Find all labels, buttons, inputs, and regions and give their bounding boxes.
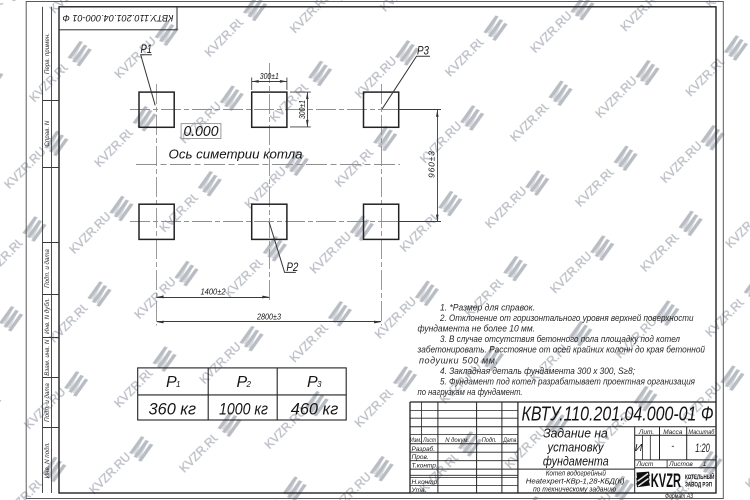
svg-text:Пров.: Пров.: [412, 454, 429, 461]
svg-text:Перв. примен.: Перв. примен.: [44, 33, 51, 74]
svg-text:забетонировать. Расстояние от: забетонировать. Расстояние от осей крайн…: [417, 345, 705, 355]
svg-text:360 кг: 360 кг: [149, 400, 197, 419]
svg-text:КОТЕЛЬНЫЙ: КОТЕЛЬНЫЙ: [685, 473, 715, 481]
svg-text:ЗАВОД РЭП: ЗАВОД РЭП: [685, 482, 712, 489]
svg-text:Лист: Лист: [636, 461, 654, 468]
svg-text:0.000: 0.000: [184, 124, 219, 140]
svg-text:Изм.: Изм.: [410, 437, 422, 444]
svg-text:2800±3: 2800±3: [256, 312, 281, 322]
svg-text:Лит.: Лит.: [638, 429, 654, 436]
svg-text:Масса: Масса: [663, 429, 683, 436]
svg-text:по техническому заданию: по техническому заданию: [533, 484, 617, 493]
svg-text:960±3: 960±3: [427, 151, 437, 178]
svg-text:КВТУ.110.201.04.000-01 Ф: КВТУ.110.201.04.000-01 Ф: [63, 13, 174, 23]
svg-text:KVZR: KVZR: [651, 470, 681, 492]
svg-text:установку: установку: [547, 440, 605, 454]
svg-text:Масштаб: Масштаб: [688, 428, 714, 436]
svg-text:1: 1: [703, 461, 707, 468]
svg-text:Подп. и дата: Подп. и дата: [44, 249, 51, 288]
svg-text:4. Закладная деталь фундамента: 4. Закладная деталь фундамента 300 х 300…: [440, 366, 635, 376]
svg-text:Лист: Лист: [422, 437, 436, 444]
svg-text:5. Фундамент под котел разраба: 5. Фундамент под котел разрабатывает про…: [440, 377, 695, 387]
svg-text:2: 2: [246, 380, 252, 389]
svg-text:Формат А3: Формат А3: [665, 493, 693, 500]
svg-text:Подп. и дата: Подп. и дата: [44, 383, 51, 422]
svg-text:P1: P1: [140, 44, 152, 56]
svg-text:Инв. N дубл.: Инв. N дубл.: [44, 298, 51, 334]
svg-text:Задание на: Задание на: [543, 427, 608, 441]
svg-text:КВТУ.110.201.04.000-01 Ф: КВТУ.110.201.04.000-01 Ф: [522, 404, 714, 426]
svg-text:Справ. N: Справ. N: [44, 120, 51, 146]
svg-text:Взам. инв. N: Взам. инв. N: [44, 339, 51, 376]
svg-text:Н.контр.: Н.контр.: [412, 479, 440, 486]
svg-text:фундамента не более 10 мм.: фундамента не более 10 мм.: [418, 324, 536, 334]
svg-text:-: -: [671, 441, 674, 451]
svg-text:1: 1: [176, 380, 180, 389]
svg-text:Ось симетрии котла: Ось симетрии котла: [169, 147, 303, 162]
svg-text:1:20: 1:20: [695, 443, 710, 455]
svg-text:1. *Размер для справок.: 1. *Размер для справок.: [440, 302, 535, 312]
svg-text:подушки 500 мм.: подушки 500 мм.: [419, 355, 498, 365]
svg-text:Разраб.: Разраб.: [412, 445, 436, 453]
svg-text:1400±2: 1400±2: [201, 287, 226, 297]
svg-text:фундамента: фундамента: [543, 454, 609, 468]
svg-text:300±1: 300±1: [260, 71, 279, 81]
svg-text:И: И: [635, 442, 643, 454]
svg-text:2. Отклонение от горизонтально: 2. Отклонение от горизонтального уровня …: [439, 313, 693, 323]
svg-text:3: 3: [317, 380, 322, 389]
svg-text:460 кг: 460 кг: [291, 400, 339, 419]
svg-text:Инв. N подл.: Инв. N подл.: [44, 442, 51, 478]
svg-text:N докум.: N докум.: [445, 436, 469, 444]
svg-text:Подп.: Подп.: [482, 436, 497, 444]
svg-text:Т.контр.: Т.контр.: [412, 463, 438, 470]
svg-text:Утв.: Утв.: [411, 487, 427, 494]
svg-text:Дата: Дата: [503, 437, 517, 444]
svg-text:3. В случае отсутствия бетонно: 3. В случае отсутствия бетонного пола пл…: [440, 334, 680, 344]
svg-text:Листов: Листов: [668, 461, 693, 468]
svg-text:1000 кг: 1000 кг: [219, 400, 268, 419]
svg-text:300±1: 300±1: [297, 100, 307, 119]
svg-text:по нагрузкам на фундамент.: по нагрузкам на фундамент.: [418, 387, 523, 397]
